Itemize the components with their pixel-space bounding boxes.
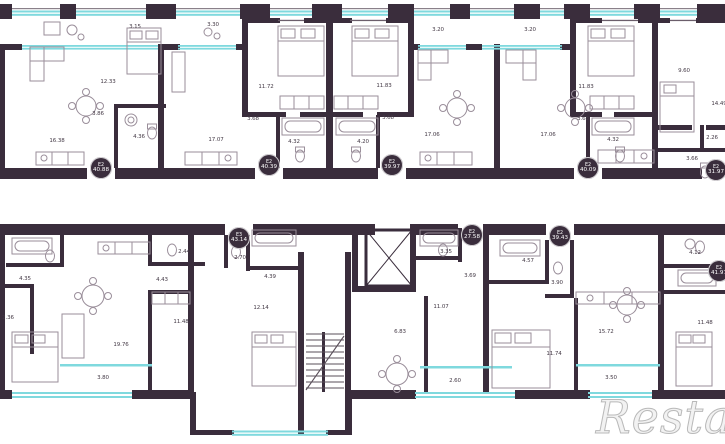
room-area-label: 11.48: [173, 319, 188, 325]
room-area-label: 11.83: [578, 84, 593, 90]
bed-icon: [492, 330, 550, 388]
apartment-badge: E240.09: [577, 157, 599, 179]
kitchen-counter-icon: [598, 150, 654, 163]
room-area-label: 4.32: [288, 139, 300, 145]
room-area-label: 2.44: [178, 249, 190, 255]
apartment-badge: E231.97: [705, 159, 725, 181]
bed-icon: [127, 28, 161, 74]
bathtub-icon: [592, 118, 634, 135]
room-area-label: 11.74: [546, 351, 561, 357]
room-area-label: 3.80: [97, 375, 109, 381]
dining-table-icon: [379, 356, 416, 393]
room-area-label: 4.35: [19, 276, 31, 282]
kitchen-counter-icon: [36, 152, 84, 165]
room-area-label: 3.69: [464, 273, 476, 279]
room-area-label: 19.76: [113, 342, 128, 348]
apartment-area: 40.09: [580, 168, 596, 174]
room-area-label: 9.60: [678, 68, 690, 74]
sofa-icon: [62, 314, 84, 358]
room-area-label: 3.68: [577, 116, 589, 122]
apartment-badge: E239.97: [381, 154, 403, 176]
toilet-icon: [46, 250, 55, 262]
room-area-label: 3.86: [92, 111, 104, 117]
furniture-layer: [12, 22, 716, 393]
kitchen-counter-icon: [98, 242, 150, 254]
wardrobe-icon: [280, 96, 324, 109]
wardrobe-icon: [590, 96, 634, 109]
toilet-icon: [296, 147, 305, 162]
apartment-area: 31.97: [708, 170, 724, 176]
room-area-label: 2.26: [706, 135, 718, 141]
sofa-icon: [506, 50, 536, 80]
room-area-label: 3.20: [432, 27, 444, 33]
apartment-area: 27.58: [464, 235, 480, 241]
room-area-label: 4.43: [156, 277, 168, 283]
room-area-label: 12.14: [253, 305, 268, 311]
room-area-label: 4.32: [607, 137, 619, 143]
walls-layer: [0, 4, 725, 435]
sofa-icon: [30, 47, 64, 81]
room-area-label: 14.49: [711, 101, 725, 107]
kitchen-counter-icon: [576, 292, 660, 304]
room-area-label: 2.36: [2, 315, 14, 321]
bed-icon: [588, 26, 634, 76]
washer-icon: [685, 239, 695, 249]
apartment-area: 40.39: [261, 165, 277, 171]
room-area-label: 11.07: [433, 304, 448, 310]
apartment-badge: E343.14: [228, 227, 250, 249]
room-area-label: 17.06: [540, 132, 555, 138]
dining-table-icon: [69, 89, 104, 124]
toilet-icon: [168, 244, 177, 256]
apartment-area: 39.97: [384, 165, 400, 171]
elevator: [366, 230, 412, 286]
room-area-label: 4.36: [133, 134, 145, 140]
floor-plan-image: Restate 3.1512.3316.383.864.363.3017.071…: [0, 0, 725, 444]
dining-table-icon: [440, 91, 475, 126]
bathtub-icon: [12, 238, 52, 254]
toilet-icon: [352, 147, 361, 162]
apartment-area: 41.97: [711, 271, 725, 277]
apartment-badge: E240.39: [258, 154, 280, 176]
room-area-label: 3.66: [686, 156, 698, 162]
room-area-label: 6.83: [394, 329, 406, 335]
room-area-label: 3.15: [129, 24, 141, 30]
room-area-label: 4.12: [689, 250, 701, 256]
sofa-icon: [172, 52, 185, 92]
room-area-label: 4.57: [522, 258, 534, 264]
room-area-label: 17.06: [424, 132, 439, 138]
room-area-label: 4.20: [357, 139, 369, 145]
room-area-label: 3.50: [605, 375, 617, 381]
armchair-icon: [44, 22, 60, 35]
room-area-label: 16.38: [49, 138, 64, 144]
bathtub-icon: [500, 240, 540, 256]
kitchen-counter-icon: [420, 152, 472, 165]
kitchen-counter-icon: [185, 152, 237, 165]
bed-icon: [12, 332, 58, 382]
apartment-area: 43.14: [231, 238, 247, 244]
dining-table-icon: [610, 288, 645, 323]
apartment-badge: E241.97: [708, 260, 725, 282]
room-area-label: 11.83: [376, 83, 391, 89]
room-area-label: 2.60: [449, 378, 461, 384]
sofa-icon: [418, 50, 448, 80]
room-area-label: 3.68: [247, 116, 259, 122]
bathtub-icon: [282, 118, 324, 135]
watermark: Restate: [596, 390, 725, 444]
apartment-badge: E227.58: [461, 224, 483, 246]
washer-icon: [125, 114, 137, 126]
dining-table-icon: [75, 278, 112, 315]
toilet-icon: [554, 262, 563, 274]
room-area-label: 2.70: [234, 255, 246, 261]
apartment-area: 40.88: [93, 168, 109, 174]
bed-icon: [252, 332, 296, 386]
room-area-label: 12.33: [100, 79, 115, 85]
bed-icon: [352, 26, 398, 76]
apartment-badge: E239.43: [549, 225, 571, 247]
facade-line: [0, 8, 725, 9]
room-area-label: 11.48: [697, 320, 712, 326]
room-area-label: 3.68: [382, 115, 394, 121]
room-area-label: 3.30: [207, 22, 219, 28]
apartment-badge: E240.88: [90, 157, 112, 179]
bed-icon: [676, 332, 712, 386]
bed-icon: [660, 82, 694, 132]
room-area-label: 3.35: [440, 249, 452, 255]
room-area-label: 4.39: [264, 274, 276, 280]
room-area-label: 11.72: [258, 84, 273, 90]
room-area-label: 3.90: [551, 280, 563, 286]
balcony-items: [67, 25, 220, 40]
room-area-label: 3.20: [524, 27, 536, 33]
toilet-icon: [148, 124, 157, 139]
toilet-icon: [616, 147, 625, 162]
bed-icon: [278, 26, 324, 76]
room-area-label: 17.07: [208, 137, 223, 143]
apartment-area: 39.43: [552, 236, 568, 242]
balcony-glazing: [12, 11, 697, 436]
bathtub-icon: [336, 118, 378, 135]
room-area-label: 15.72: [598, 329, 613, 335]
wardrobe-icon: [334, 96, 378, 109]
